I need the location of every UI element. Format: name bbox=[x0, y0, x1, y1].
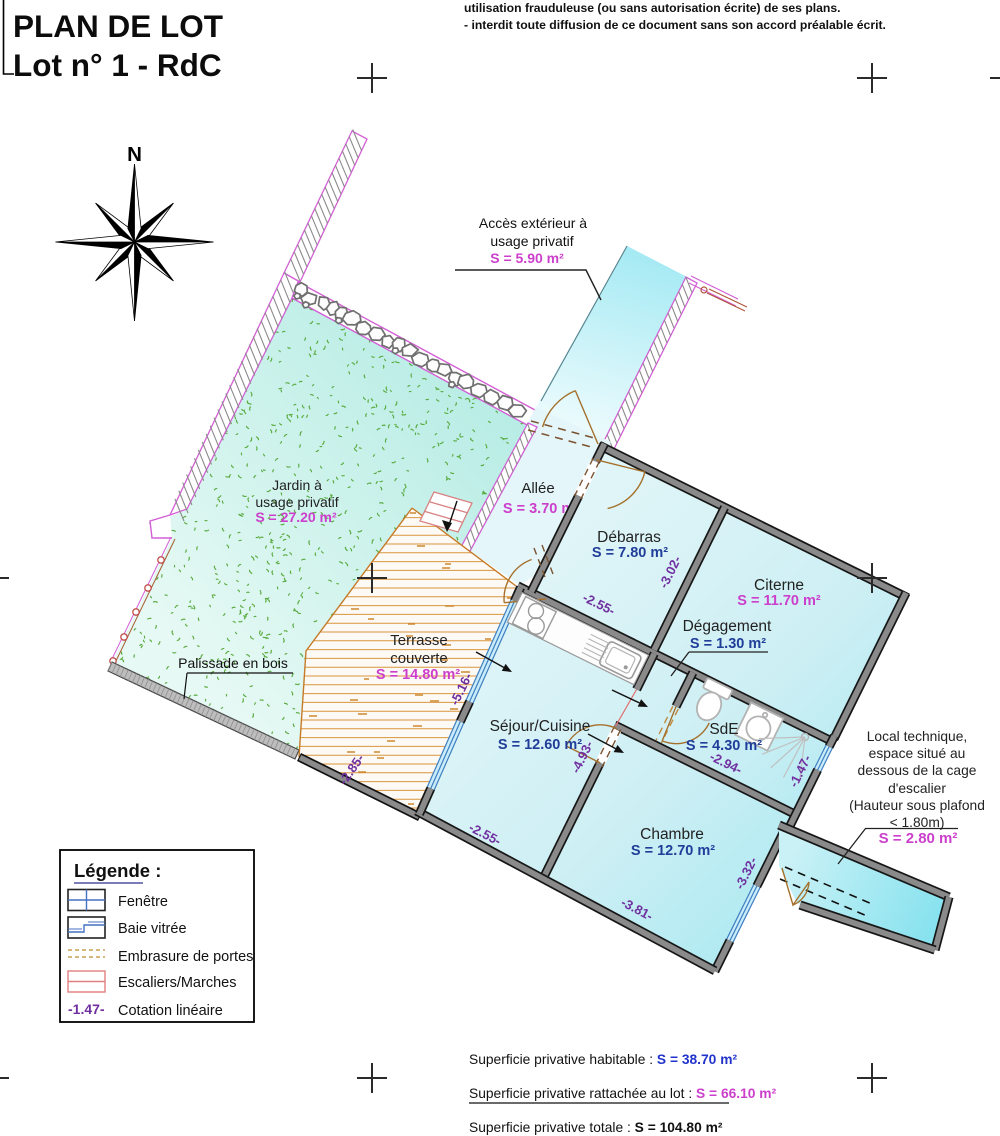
svg-text:S = 7.80 m²: S = 7.80 m² bbox=[592, 545, 668, 561]
svg-text:N: N bbox=[127, 143, 142, 166]
svg-text:d'escalier: d'escalier bbox=[888, 781, 946, 796]
svg-text:S = 14.80 m²: S = 14.80 m² bbox=[376, 667, 460, 683]
svg-text:Embrasure de portes: Embrasure de portes bbox=[118, 949, 253, 965]
svg-text:S = 2.80 m²: S = 2.80 m² bbox=[879, 830, 958, 847]
svg-text:Superficie privative rattachée: Superficie privative rattachée au lot : … bbox=[469, 1086, 777, 1101]
svg-text:Séjour/Cuisine: Séjour/Cuisine bbox=[490, 718, 591, 735]
svg-text:Superficie privative totale :: Superficie privative totale : S = 104.80… bbox=[469, 1120, 723, 1135]
svg-text:PLAN DE LOT: PLAN DE LOT bbox=[13, 8, 223, 44]
svg-text:Escaliers/Marches: Escaliers/Marches bbox=[118, 975, 236, 991]
svg-text:< 1.80m): < 1.80m) bbox=[890, 815, 945, 830]
svg-text:- interdit toute diffusion de: - interdit toute diffusion de ce documen… bbox=[464, 18, 886, 32]
svg-text:S = 4.30 m²: S = 4.30 m² bbox=[686, 738, 762, 754]
svg-text:S = 11.70 m²: S = 11.70 m² bbox=[737, 593, 821, 609]
svg-text:-1.47-: -1.47- bbox=[68, 1001, 105, 1017]
svg-text:Palissade en bois: Palissade en bois bbox=[178, 655, 288, 671]
svg-text:Cotation linéaire: Cotation linéaire bbox=[118, 1003, 223, 1019]
svg-text:S = 5.90 m²: S = 5.90 m² bbox=[490, 250, 564, 266]
svg-text:Lot n° 1 - RdC: Lot n° 1 - RdC bbox=[13, 47, 222, 83]
svg-text:usage privatif: usage privatif bbox=[255, 494, 338, 510]
svg-text:Fenêtre: Fenêtre bbox=[118, 894, 168, 910]
svg-text:Chambre: Chambre bbox=[640, 826, 704, 843]
svg-text:couverte: couverte bbox=[390, 650, 448, 667]
svg-text:Accès extérieur à: Accès extérieur à bbox=[479, 215, 587, 231]
svg-text:Baie vitrée: Baie vitrée bbox=[118, 921, 187, 937]
svg-text:Citerne: Citerne bbox=[754, 577, 804, 594]
svg-text:Terrasse: Terrasse bbox=[390, 632, 448, 649]
svg-text:S = 1.30 m²: S = 1.30 m² bbox=[690, 636, 766, 652]
svg-text:utilisation frauduleuse (ou sa: utilisation frauduleuse (ou sans autoris… bbox=[464, 1, 841, 15]
svg-text:espace situé au: espace situé au bbox=[869, 746, 966, 761]
svg-text:S = 27.20 m²: S = 27.20 m² bbox=[255, 509, 337, 525]
svg-text:Dégagement: Dégagement bbox=[683, 618, 772, 635]
svg-text:Débarras: Débarras bbox=[597, 529, 661, 546]
svg-text:Local technique,: Local technique, bbox=[867, 729, 968, 744]
svg-text:S = 12.60 m²: S = 12.60 m² bbox=[498, 737, 582, 753]
svg-text:(Hauteur sous plafond: (Hauteur sous plafond bbox=[849, 798, 985, 813]
svg-text:Légende :: Légende : bbox=[74, 860, 161, 881]
svg-text:Superficie privative habitable: Superficie privative habitable : S = 38.… bbox=[469, 1052, 737, 1067]
svg-text:Allée: Allée bbox=[521, 480, 554, 497]
svg-text:S = 12.70 m²: S = 12.70 m² bbox=[631, 843, 715, 859]
svg-text:Jardin à: Jardin à bbox=[272, 477, 322, 493]
svg-text:SdE: SdE bbox=[709, 721, 738, 738]
svg-text:dessous de la cage: dessous de la cage bbox=[858, 763, 977, 778]
svg-text:usage privatif: usage privatif bbox=[490, 233, 573, 249]
